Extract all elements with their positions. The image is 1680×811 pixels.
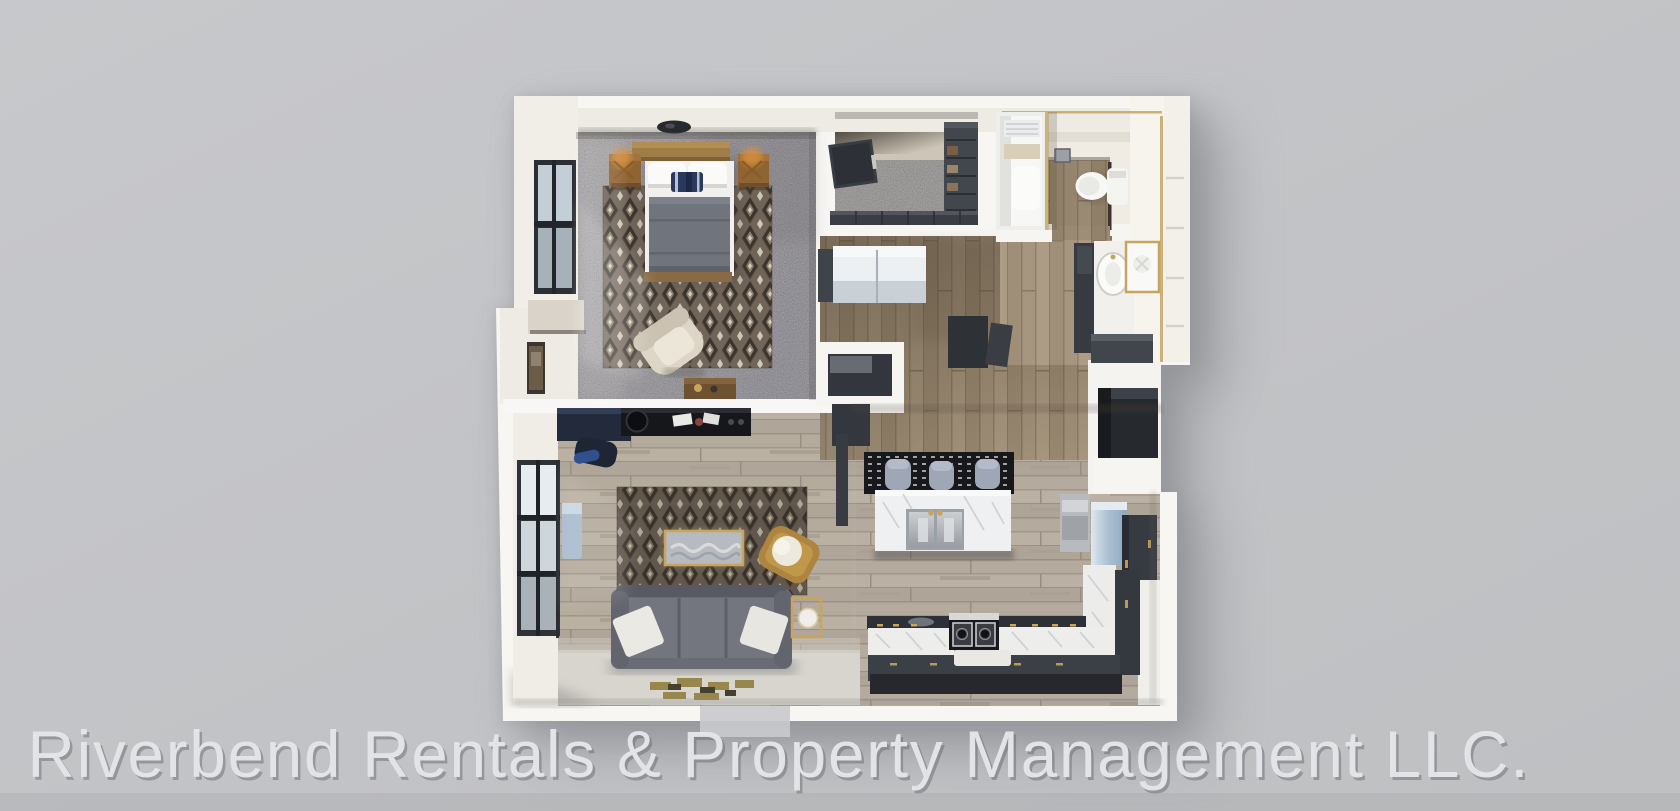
svg-text:Riverbend Rentals & Property M: Riverbend Rentals & Property Management … [28,718,1531,791]
